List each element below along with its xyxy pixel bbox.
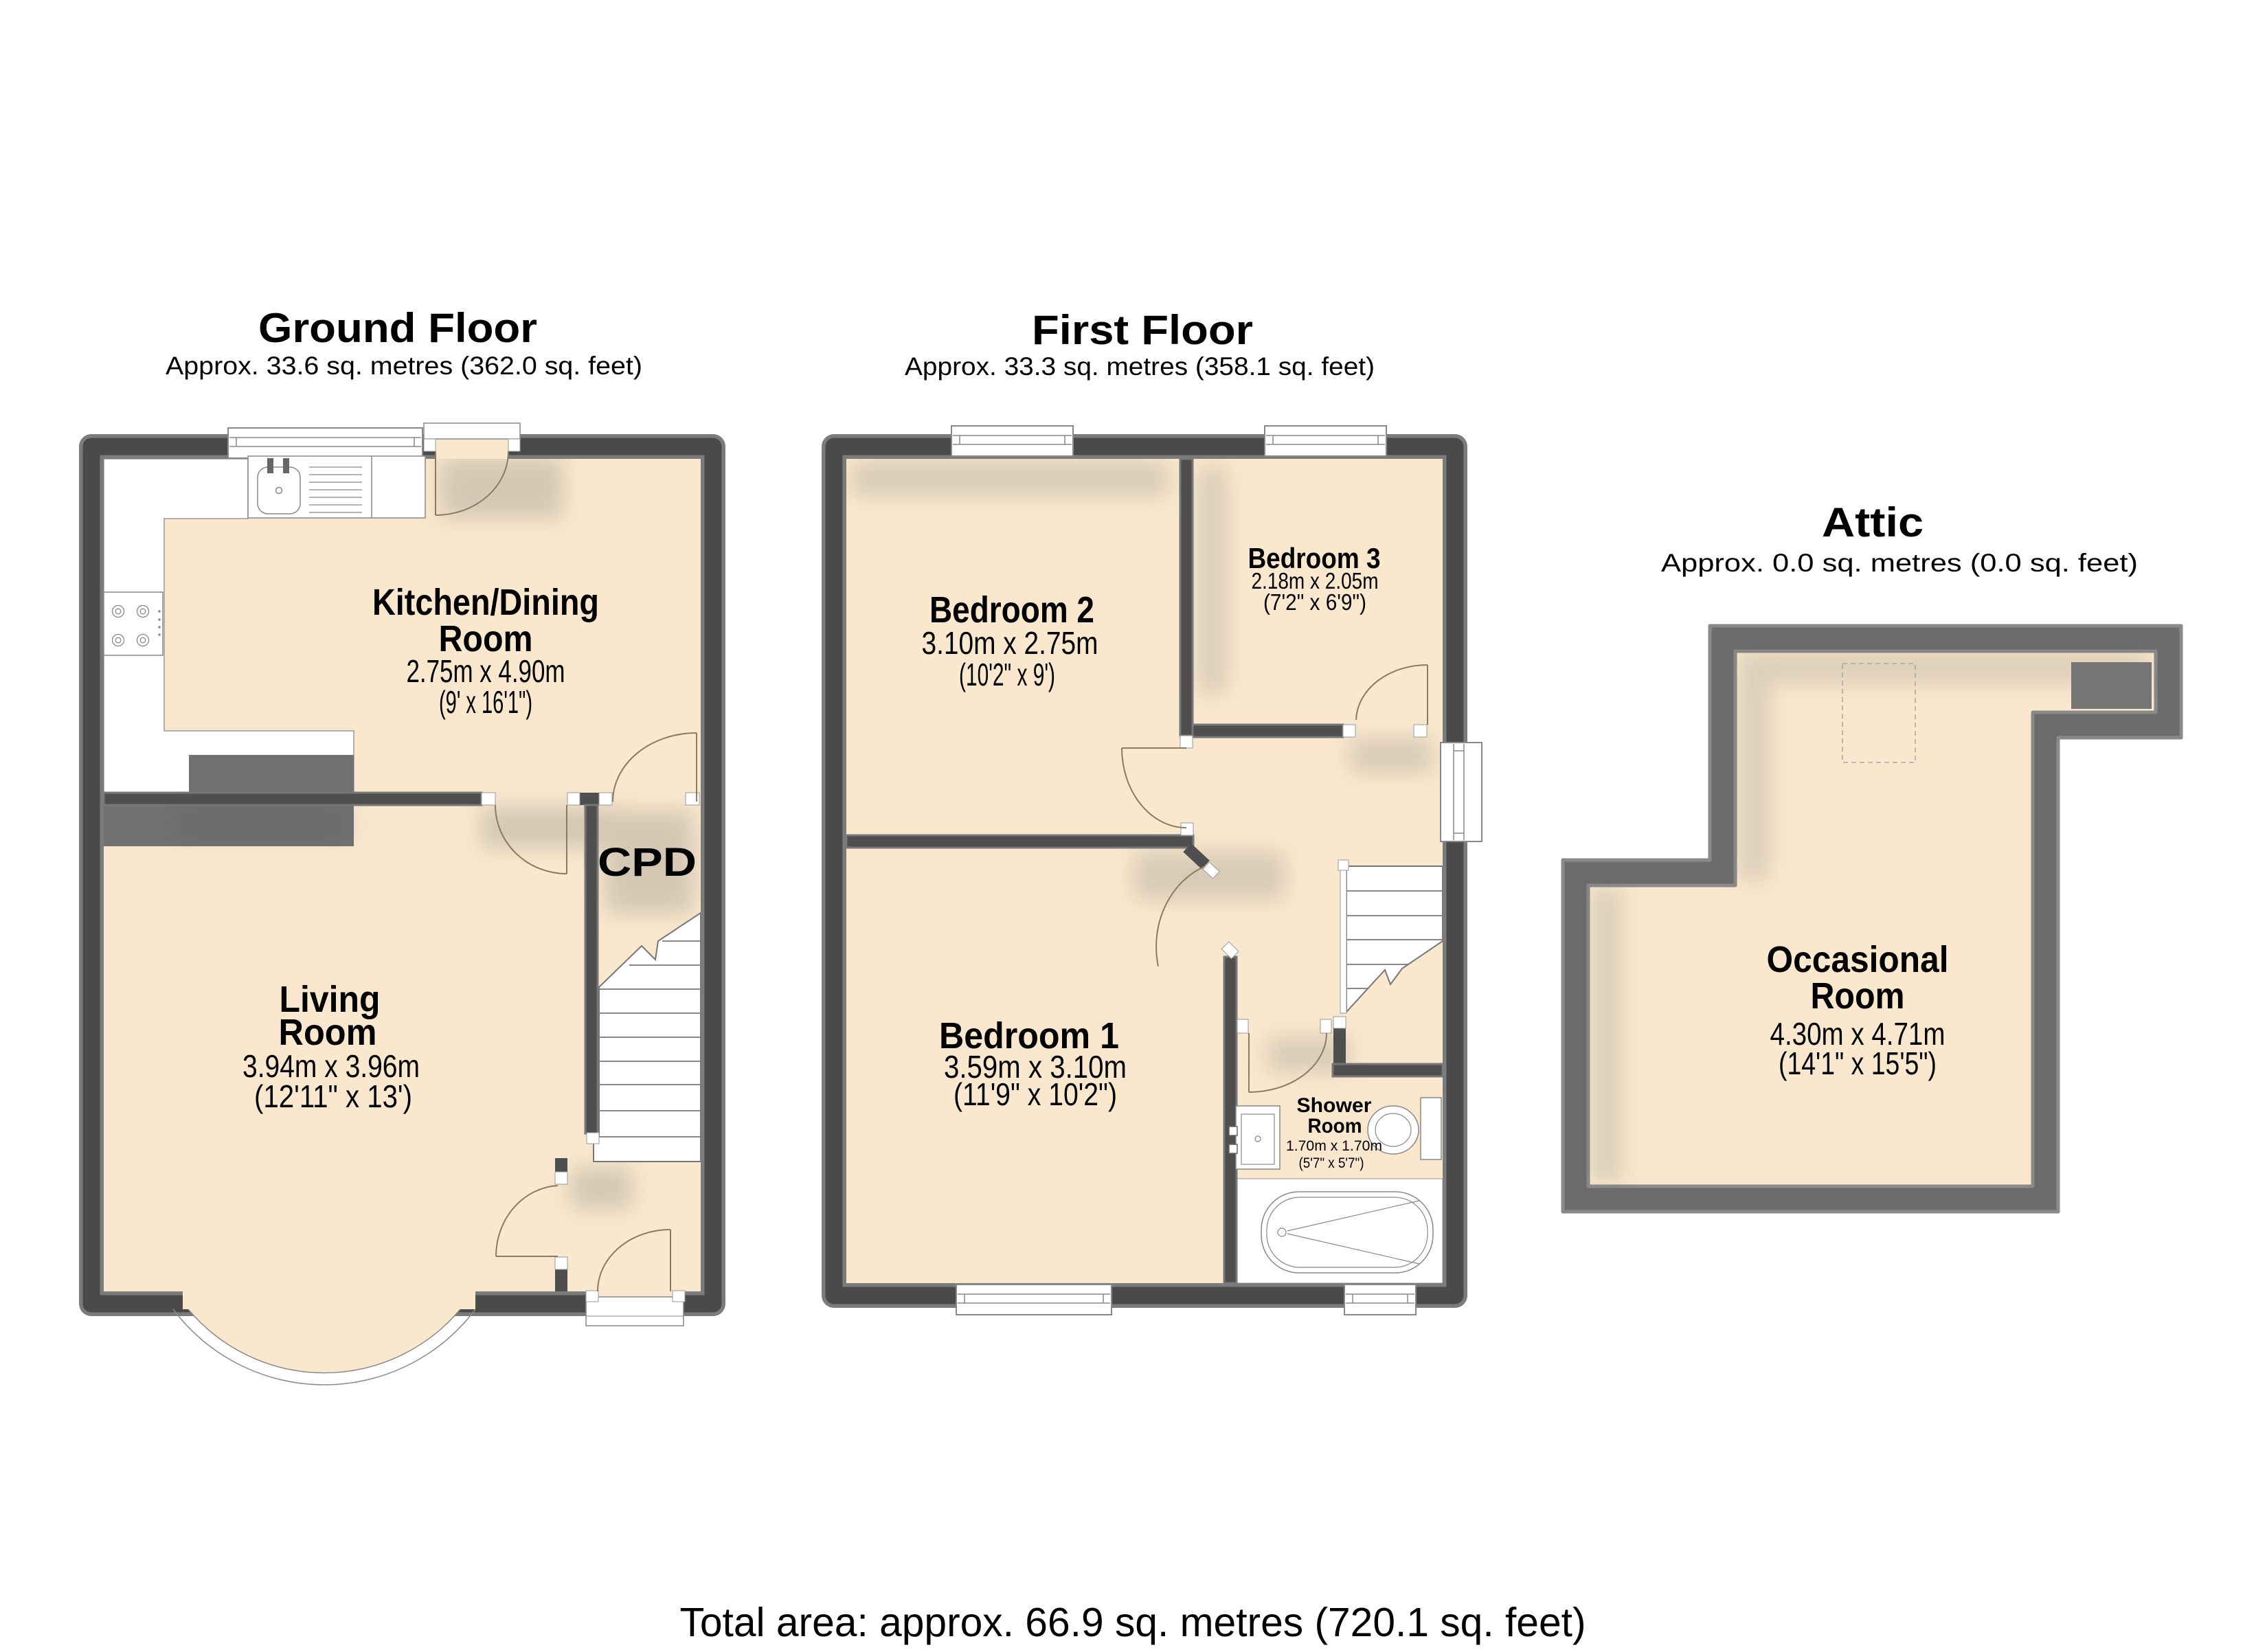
svg-text:Attic: Attic [1822, 499, 1924, 545]
svg-text:Shower: Shower [1297, 1094, 1372, 1117]
svg-text:Room: Room [279, 1012, 377, 1053]
svg-text:Ground Floor: Ground Floor [258, 305, 537, 351]
svg-text:Approx. 33.6 sq. metres (362.0: Approx. 33.6 sq. metres (362.0 sq. feet) [166, 352, 642, 380]
svg-text:Bedroom 2: Bedroom 2 [929, 589, 1094, 631]
svg-text:Approx. 0.0 sq. metres (0.0 sq: Approx. 0.0 sq. metres (0.0 sq. feet) [1661, 549, 2138, 577]
svg-text:(11'9" x 10'2"): (11'9" x 10'2") [954, 1076, 1117, 1112]
svg-text:(12'11" x 13'): (12'11" x 13') [254, 1078, 412, 1114]
svg-text:Approx. 33.3 sq. metres (358.1: Approx. 33.3 sq. metres (358.1 sq. feet) [905, 352, 1375, 381]
svg-text:(10'2" x 9'): (10'2" x 9') [959, 657, 1055, 692]
svg-text:(14'1" x 15'5"): (14'1" x 15'5") [1779, 1045, 1937, 1081]
svg-text:3.10m x 2.75m: 3.10m x 2.75m [922, 625, 1098, 661]
svg-text:Room: Room [1308, 1115, 1362, 1138]
svg-text:First Floor: First Floor [1032, 307, 1253, 353]
svg-text:CPD: CPD [598, 840, 697, 885]
svg-text:Kitchen/Dining: Kitchen/Dining [372, 582, 599, 623]
svg-text:Room: Room [1811, 975, 1905, 1017]
svg-text:(7'2" x 6'9"): (7'2" x 6'9") [1263, 589, 1366, 615]
svg-text:Total area: approx. 66.9 sq. m: Total area: approx. 66.9 sq. metres (720… [680, 1600, 1586, 1645]
svg-text:(9' x 16'1"): (9' x 16'1") [439, 684, 532, 720]
svg-text:(5'7" x 5'7"): (5'7" x 5'7") [1299, 1155, 1364, 1171]
svg-text:Occasional: Occasional [1767, 939, 1949, 980]
svg-text:1.70m x 1.70m: 1.70m x 1.70m [1286, 1138, 1382, 1154]
